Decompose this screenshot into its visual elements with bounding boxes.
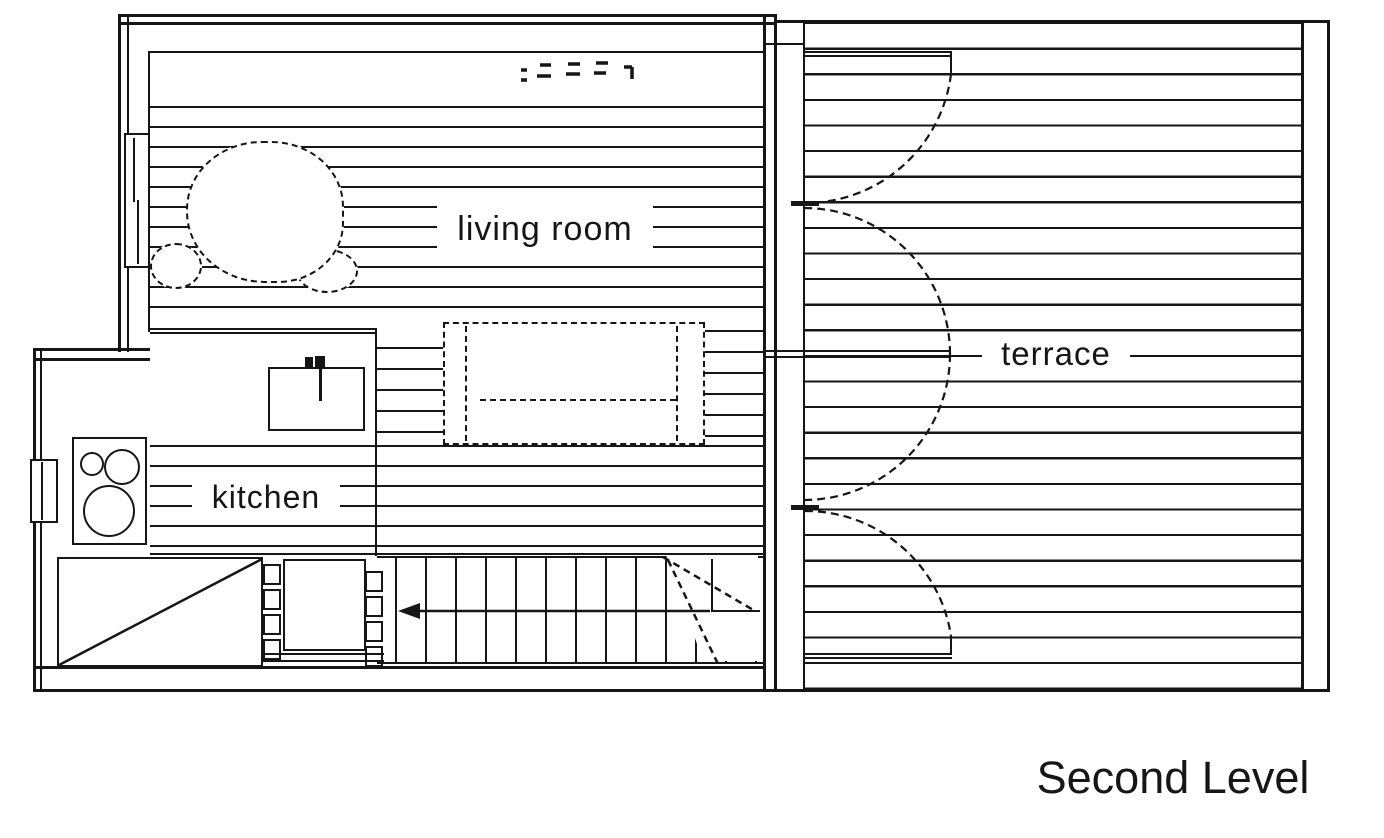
kitchen-label: kitchen	[192, 476, 340, 518]
table-inner-line-right	[676, 326, 678, 441]
cooktop-burner-small	[80, 452, 104, 476]
cooktop-burner-large	[83, 485, 135, 537]
terrace-rail-outer	[1327, 20, 1330, 692]
faucet-icon	[305, 357, 313, 367]
stair-bottom-edge	[377, 662, 763, 664]
step-right	[365, 571, 383, 592]
step-right	[365, 596, 383, 617]
step-left	[263, 614, 281, 635]
step-left	[263, 639, 281, 660]
terrace-top-extension	[775, 20, 803, 23]
cooktop-burner-medium	[104, 449, 140, 485]
window-glazing-line	[133, 138, 135, 202]
floorboards-strip-right-of-table	[705, 314, 763, 450]
counter-front-edge	[150, 328, 377, 330]
bumpout-window	[30, 459, 58, 523]
terrace-left-edge	[803, 20, 805, 692]
void-rectangle	[57, 557, 263, 667]
armchair-footstool-arc-left	[150, 243, 202, 289]
armchair-dashed-outline	[186, 141, 344, 283]
window-glazing-line	[137, 200, 139, 264]
step-left	[263, 564, 281, 585]
living-room-label: living room	[437, 206, 653, 252]
wall-bottom-outer	[33, 689, 806, 692]
terrace-rail-inner	[1301, 20, 1304, 692]
plan-title-text: Second Level	[1037, 752, 1310, 804]
faucet-stem	[319, 367, 322, 401]
terrace-house-tie-line	[763, 43, 803, 45]
kitchen-floor-bottom-line	[150, 553, 763, 555]
table-inner-line-left	[465, 326, 467, 441]
kitchen-label-text: kitchen	[212, 479, 320, 516]
living-room-label-text: living room	[457, 210, 632, 249]
table-inner-line-horizontal	[480, 399, 676, 401]
terrace-label-text: terrace	[1001, 335, 1111, 373]
floor-plan-canvas: living room kitchen terrace Second Level	[0, 0, 1384, 838]
stair-top-edge	[377, 556, 763, 558]
wall-east-outer	[763, 14, 766, 692]
stair-landing-box	[283, 559, 366, 651]
interior-top-line	[150, 51, 763, 53]
wall-top-outer	[118, 14, 775, 17]
faucet-icon	[315, 356, 325, 367]
dining-table-dashed-outline	[443, 322, 705, 445]
wall-top-inner	[118, 22, 775, 25]
plan-title: Second Level	[1013, 752, 1333, 804]
bumpout-top-wall	[33, 348, 150, 351]
landing-lower-line	[263, 660, 384, 662]
sink	[268, 367, 365, 431]
illegible-dashed-marks	[521, 63, 632, 80]
bumpout-window-glazing	[41, 462, 43, 520]
wall-bottom-inner	[33, 666, 765, 669]
landing-lower-line	[263, 653, 384, 655]
counter-side-divider	[375, 328, 377, 556]
stair-treads	[395, 558, 760, 664]
terrace-bottom-edge	[803, 689, 1330, 692]
wall-east-inner	[774, 14, 777, 692]
step-left	[263, 589, 281, 610]
terrace-label: terrace	[982, 333, 1130, 375]
wall-left-outer	[118, 14, 121, 352]
counter-front-edge-inner	[150, 332, 377, 334]
step-right	[365, 621, 383, 642]
bumpout-top-wall-inner	[33, 358, 150, 361]
floorboards-strip-left-of-table	[377, 336, 443, 448]
terrace-top-edge	[803, 20, 1330, 23]
